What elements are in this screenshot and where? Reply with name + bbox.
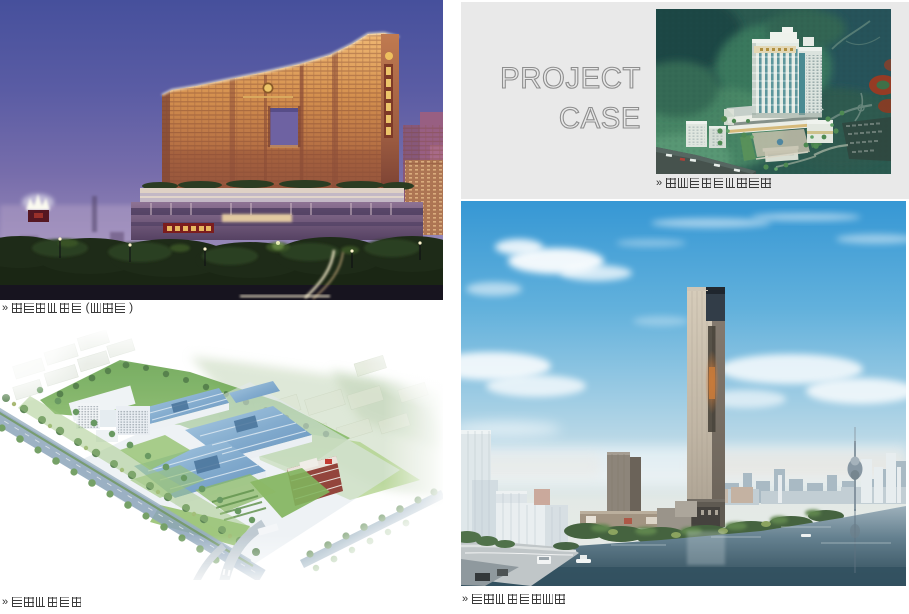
svg-text:CASE: CASE [559,102,641,135]
svg-text:PROJECT: PROJECT [500,62,641,95]
